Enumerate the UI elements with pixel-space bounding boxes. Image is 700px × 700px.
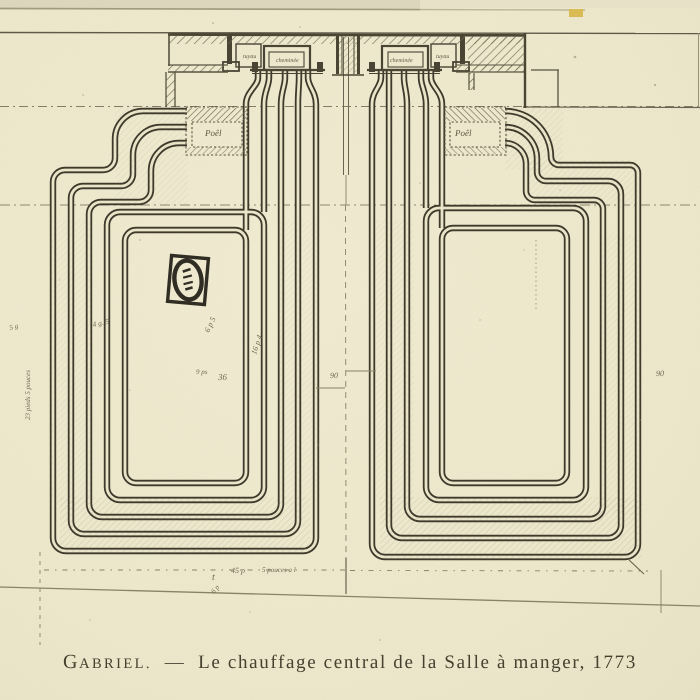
svg-text:Poêl: Poêl (204, 128, 222, 138)
svg-text:tuyau: tuyau (243, 54, 256, 60)
svg-text:tuyau: tuyau (436, 54, 449, 60)
svg-text:36: 36 (217, 372, 228, 382)
svg-text:23 pieds 5 pouces: 23 pieds 5 pouces (24, 370, 32, 420)
svg-text:45 p: 45 p (231, 566, 245, 575)
svg-text:90: 90 (330, 371, 338, 380)
svg-text:Poêl: Poêl (454, 128, 472, 138)
svg-text:9 ps: 9 ps (196, 368, 208, 376)
svg-text:cheminée: cheminée (390, 57, 413, 64)
svg-text:90: 90 (656, 369, 664, 378)
svg-text:t: t (212, 572, 215, 583)
svg-text:5 pouces a l: 5 pouces a l (262, 566, 296, 574)
svg-text:cheminée: cheminée (276, 57, 299, 64)
